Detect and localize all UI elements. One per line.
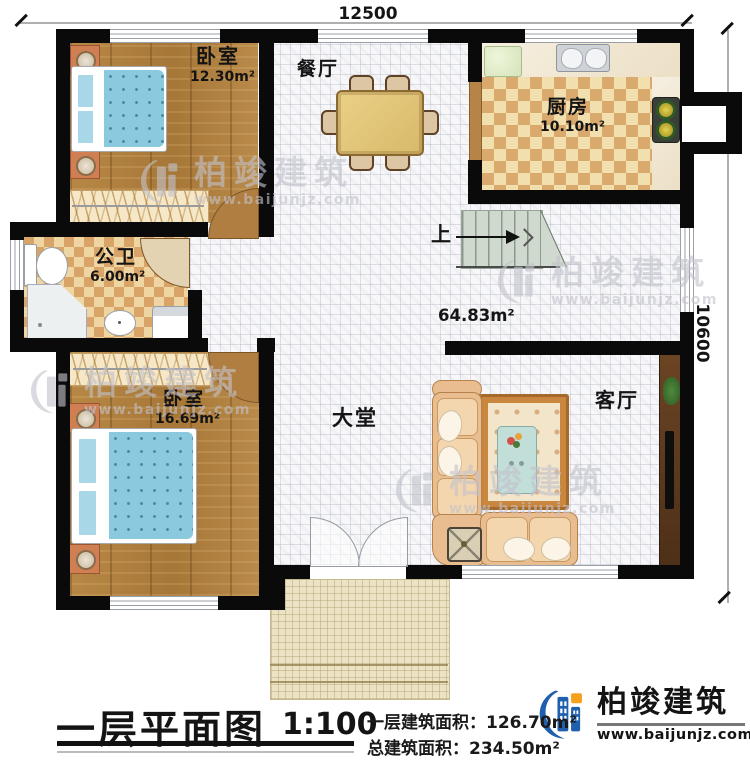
shower-drain — [38, 323, 42, 327]
nightstand — [69, 544, 100, 574]
exterior-wall — [406, 565, 462, 579]
closet — [68, 353, 212, 386]
interior-wall — [259, 29, 274, 237]
stove — [652, 97, 680, 143]
fridge — [484, 46, 522, 77]
window — [525, 29, 637, 43]
bedroom-top-label: 卧室 — [196, 46, 240, 66]
title-underline-thin — [57, 751, 354, 753]
interior-wall — [10, 338, 208, 352]
bathroom-area: 6.00m² — [90, 270, 145, 284]
floor-area-line: 一层建筑面积：126.70m² — [367, 708, 577, 733]
exterior-wall — [428, 29, 525, 43]
brand-name: 柏竣建筑 — [597, 686, 750, 721]
porch-step-line — [270, 681, 448, 683]
plant — [663, 377, 680, 405]
cup-decor — [519, 461, 524, 466]
window — [462, 565, 618, 579]
dimension-tick — [14, 14, 27, 27]
interior-wall — [445, 341, 680, 355]
sofa-cushion — [437, 478, 478, 516]
window — [110, 29, 220, 43]
stair-direction-line — [456, 236, 508, 238]
stair-baseline — [456, 266, 560, 268]
living-label: 客厅 — [595, 390, 639, 410]
bed — [71, 428, 197, 544]
window — [318, 29, 428, 43]
toilet-bowl — [36, 247, 68, 285]
exterior-wall — [10, 222, 24, 240]
washing-machine-lid — [153, 307, 190, 316]
exterior-wall — [56, 29, 70, 222]
window — [110, 596, 218, 610]
dining-label: 餐厅 — [297, 60, 339, 79]
bed — [71, 66, 167, 152]
dimension-tick — [717, 591, 730, 604]
porch-step-line — [270, 664, 448, 666]
nightstand — [70, 150, 100, 179]
sink-basin — [584, 47, 609, 71]
floor-area-label: 一层建筑面积： — [367, 713, 486, 733]
washing-machine — [152, 306, 191, 341]
floor-area-value: 126.70m² — [486, 713, 577, 733]
sink-drain — [118, 321, 121, 324]
closet — [67, 190, 209, 223]
lamp — [461, 541, 467, 547]
tv — [665, 431, 674, 509]
interior-wall — [468, 43, 482, 82]
bed-mattress — [109, 432, 193, 539]
kitchen-sink — [556, 44, 610, 72]
total-area-line: 总建筑面积：234.50m² — [367, 734, 560, 759]
kitchen-door-threshold — [469, 82, 482, 160]
window — [680, 228, 694, 312]
interior-wall — [468, 190, 694, 204]
stove-burner — [656, 120, 676, 140]
exterior-wall — [56, 596, 110, 610]
lamp-table — [447, 527, 482, 562]
sink-basin — [560, 47, 585, 71]
kitchen-area: 10.10m² — [540, 120, 605, 134]
total-area-label: 总建筑面积： — [367, 739, 469, 759]
floor-plan-canvas: 12500 10600 — [0, 0, 750, 761]
niche-opening — [682, 106, 726, 142]
kitchen-label: 厨房 — [547, 98, 589, 117]
exterior-wall — [680, 312, 694, 579]
dimension-width-label: 12500 — [318, 4, 418, 24]
bed-pillow — [77, 437, 98, 485]
interior-wall — [188, 290, 202, 338]
stairs-up-label: 上 — [431, 224, 451, 244]
flower-decor — [515, 433, 522, 440]
hall-label: 大堂 — [332, 408, 378, 429]
exterior-wall — [56, 352, 70, 610]
plan-title: 一层平面图 — [56, 699, 266, 755]
hall-area: 64.83m² — [438, 308, 515, 325]
brand-divider — [597, 723, 745, 726]
flower-decor — [513, 441, 520, 448]
bathroom-label: 公卫 — [95, 248, 137, 267]
cup-decor — [509, 461, 514, 466]
interior-wall — [24, 222, 208, 237]
bed-pillow — [77, 489, 98, 537]
brand-website: www.baijunjz.com — [597, 727, 750, 743]
dining-table — [336, 90, 424, 156]
dimension-tick — [680, 14, 693, 27]
dimension-height-label: 10600 — [692, 283, 712, 383]
interior-wall — [257, 338, 275, 352]
bedroom-bottom-area: 16.69m² — [155, 412, 220, 426]
exterior-wall — [271, 565, 310, 579]
title-underline — [57, 741, 354, 746]
stove-burner — [656, 100, 676, 120]
bedroom-top-area: 12.30m² — [190, 70, 255, 84]
total-area-value: 234.50m² — [469, 739, 560, 759]
coffee-table — [497, 426, 537, 494]
bathroom-sink — [104, 310, 136, 336]
plan-scale: 1:100 — [282, 707, 378, 742]
bed-mattress — [104, 70, 164, 147]
bedroom-bottom-label: 卧室 — [163, 390, 205, 409]
window — [10, 240, 24, 290]
